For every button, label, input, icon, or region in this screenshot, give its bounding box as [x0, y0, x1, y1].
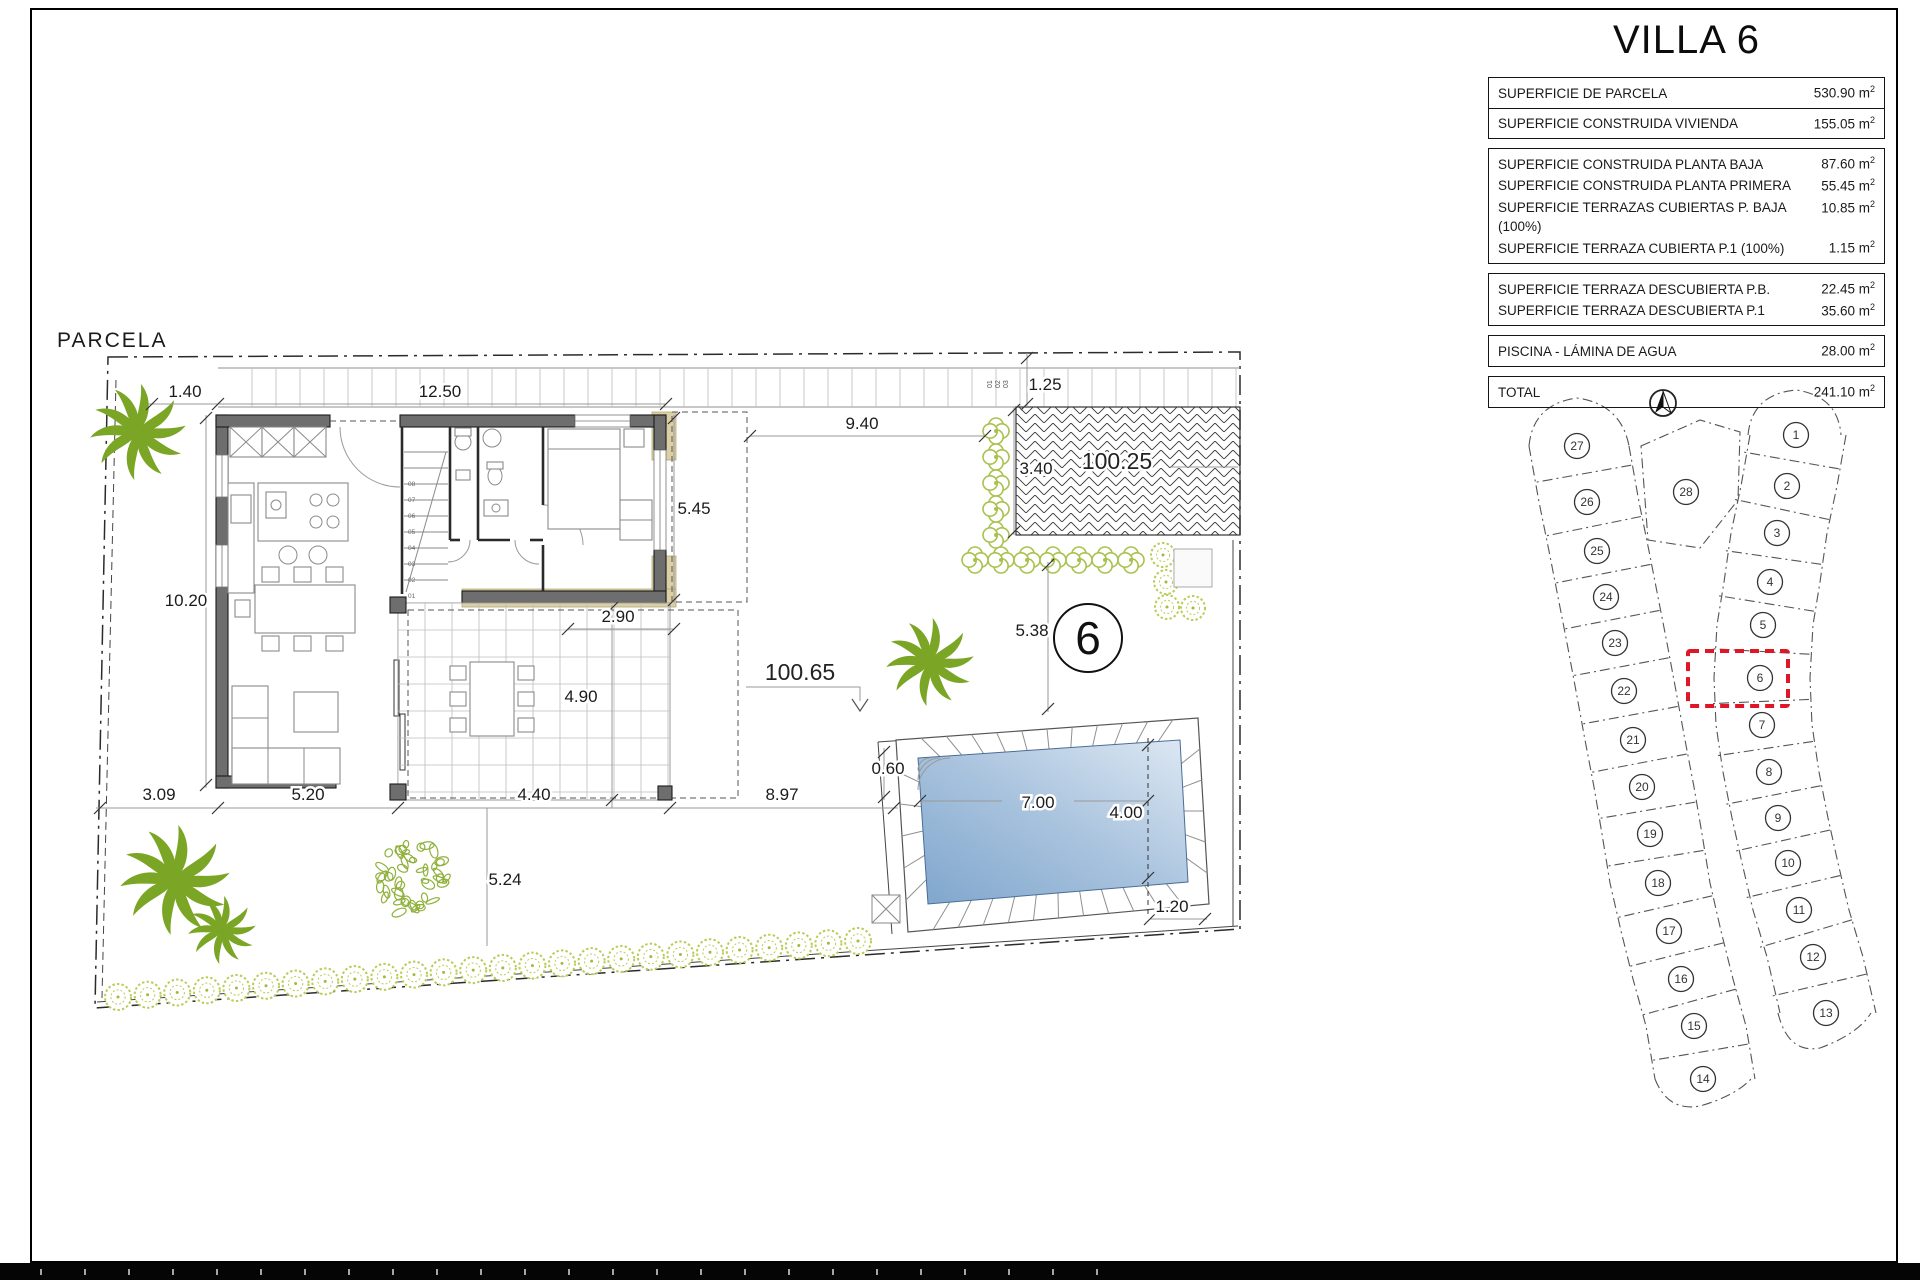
sheet-bottom-bar — [0, 1263, 1920, 1280]
drawing-sheet: PARCELA 010203 100.25 — [0, 0, 1920, 1280]
sheet-frame — [30, 8, 1898, 1263]
